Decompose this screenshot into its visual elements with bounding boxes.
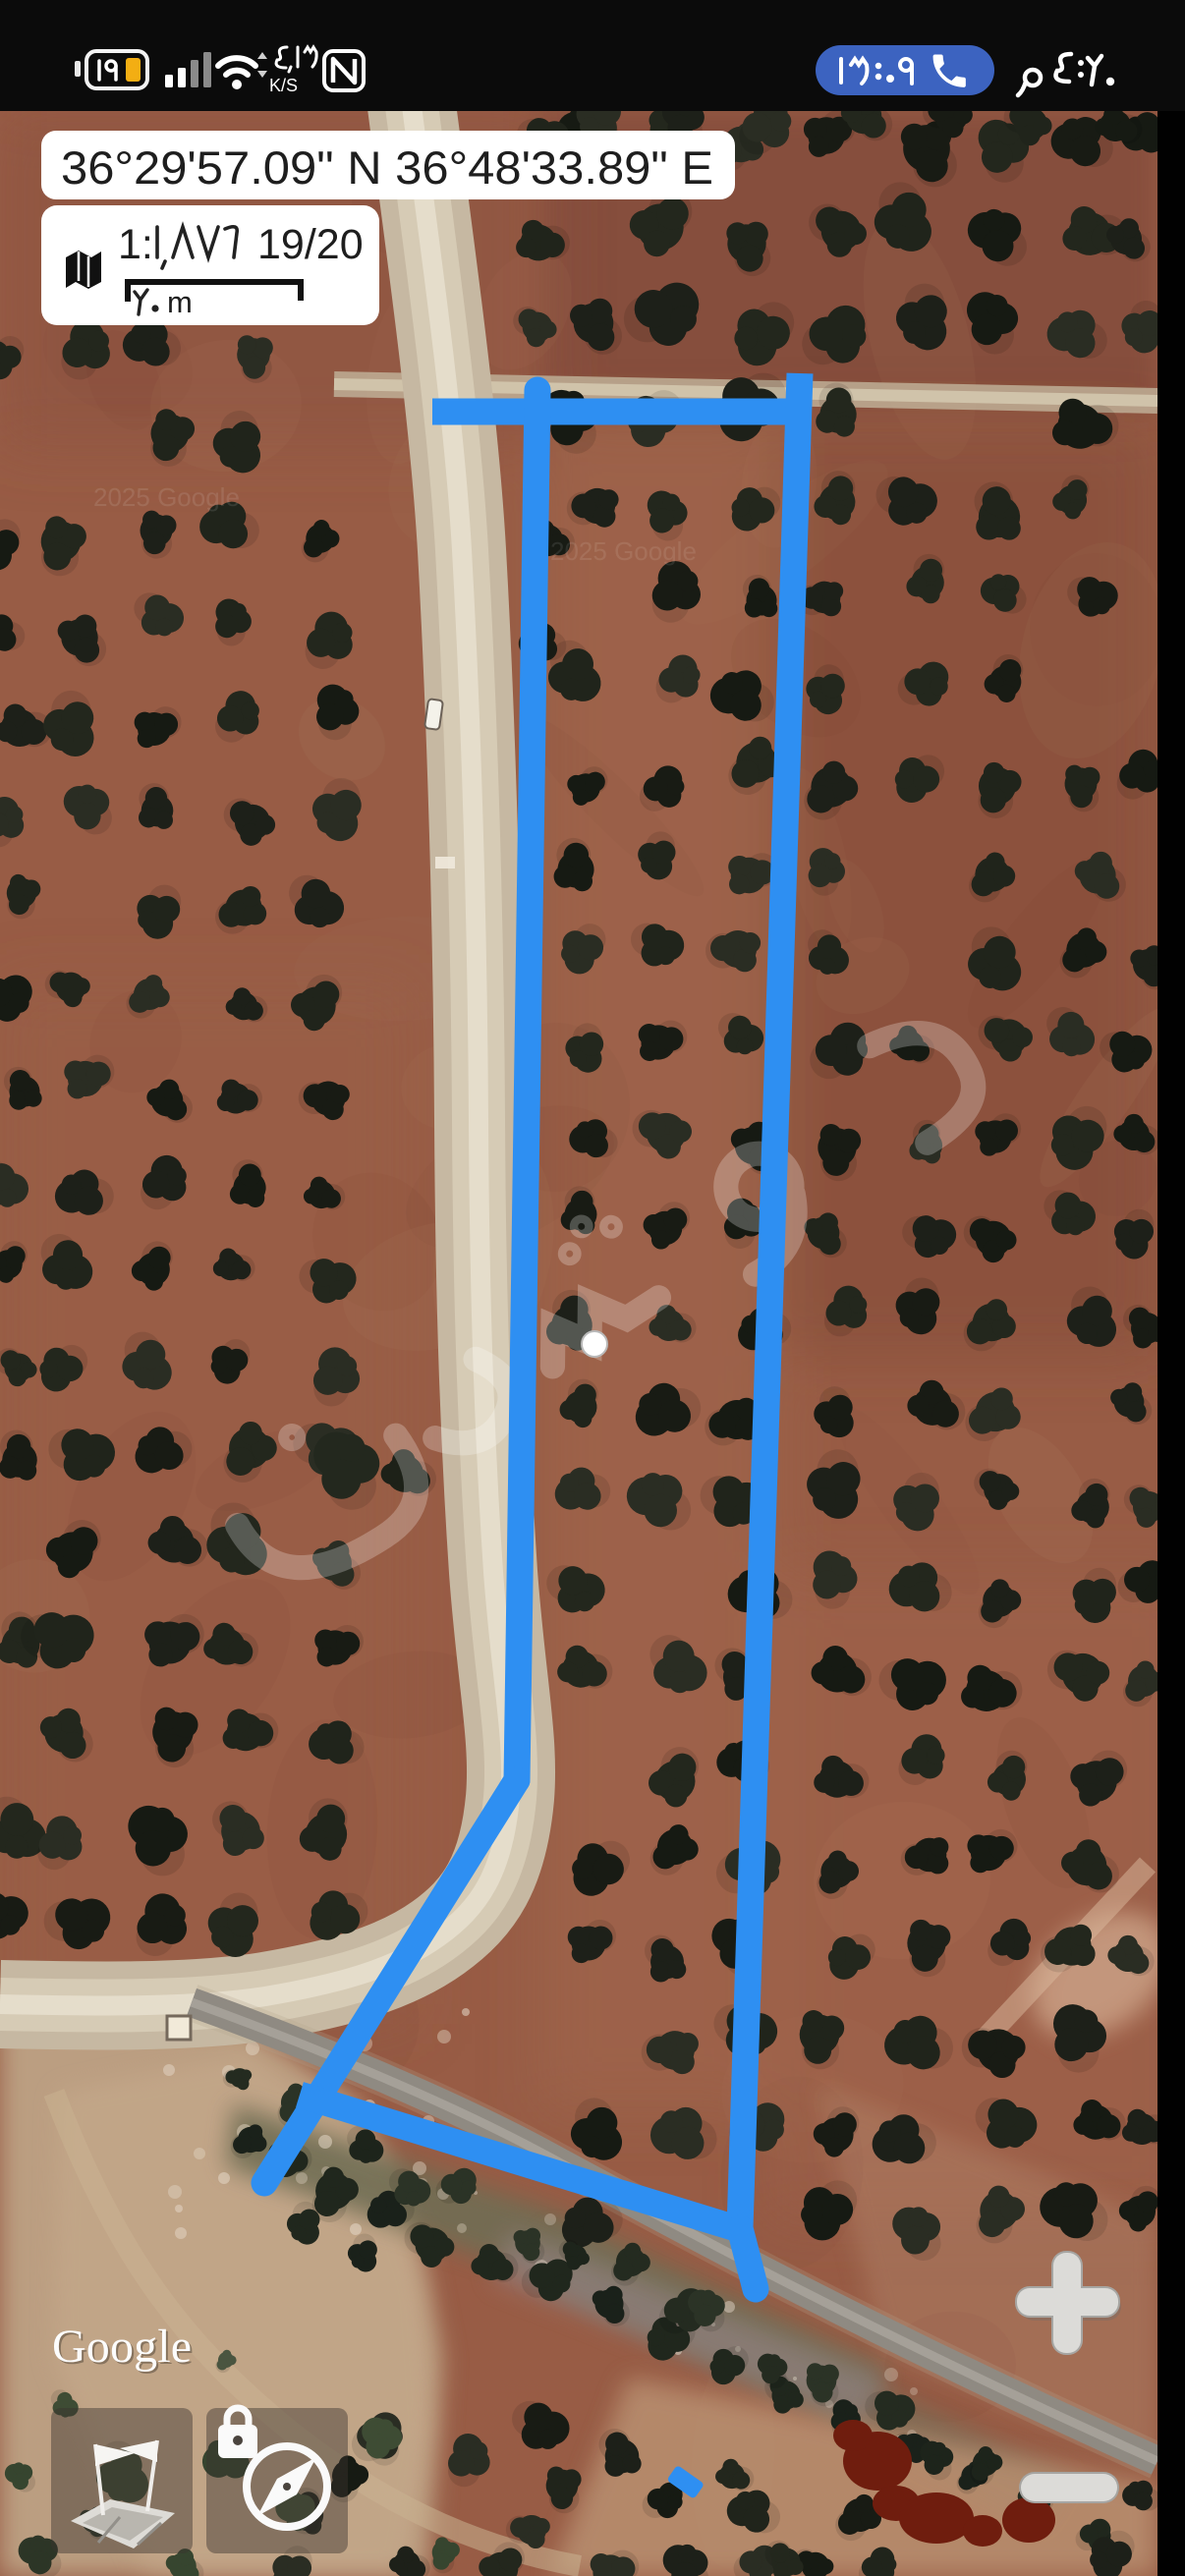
svg-text:1:: 1: <box>118 221 153 268</box>
svg-text:m: m <box>167 285 193 319</box>
svg-text:Google: Google <box>52 2321 192 2373</box>
svg-text:2025 Google: 2025 Google <box>550 536 697 566</box>
svg-text:K/S: K/S <box>269 76 298 95</box>
svg-text:19/20: 19/20 <box>257 221 364 268</box>
svg-text:36°29'57.09" N 36°48'33.89" E: 36°29'57.09" N 36°48'33.89" E <box>61 141 713 194</box>
svg-text:2025 Google: 2025 Google <box>93 482 240 512</box>
